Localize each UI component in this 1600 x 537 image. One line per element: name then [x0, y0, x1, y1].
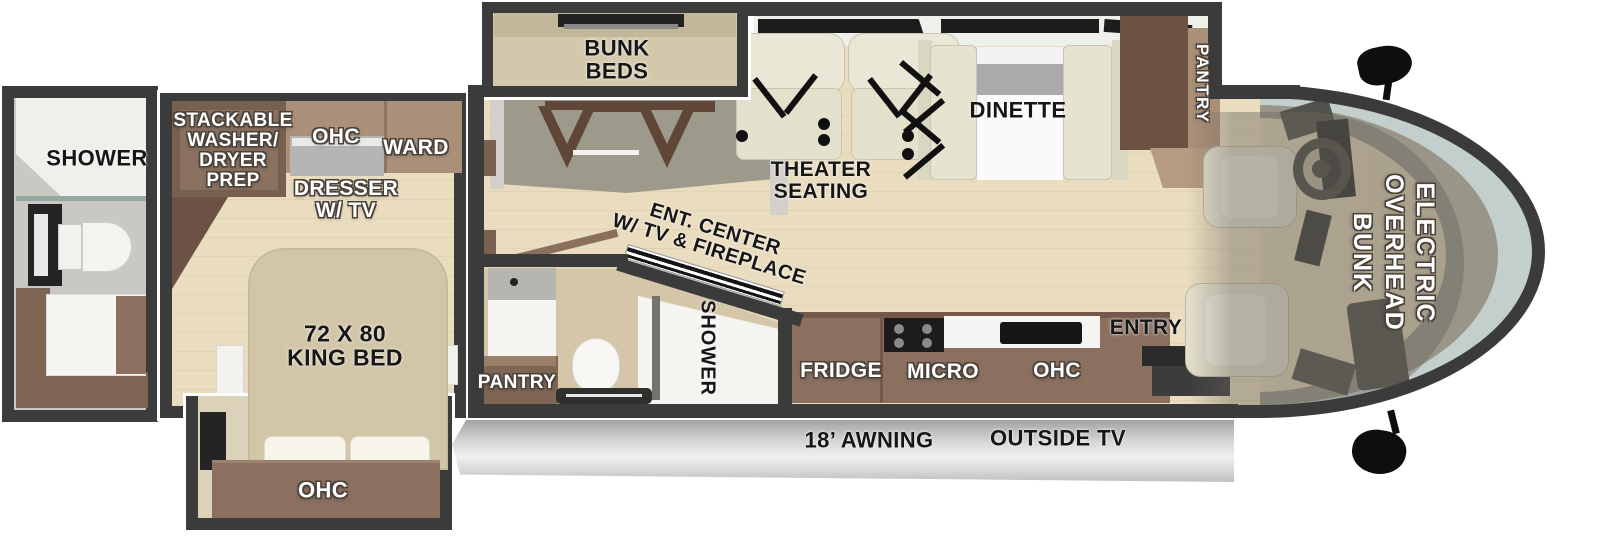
toilet: [572, 338, 620, 394]
slide-wall-top: [744, 2, 1222, 16]
cupholder-dot: [818, 134, 830, 146]
label-overhead-bunk: ELECTRIC OVERHEAD BUNK: [1346, 174, 1440, 332]
label-dinette: DINETTE: [970, 98, 1067, 121]
side-mirror-icon: [1349, 426, 1410, 479]
label-washer-dryer: STACKABLE WASHER/ DRYER PREP: [173, 111, 292, 192]
label-mid-shower: SHOWER: [696, 300, 717, 396]
faucet-dot: [510, 278, 518, 286]
shower-door: [652, 296, 660, 400]
cupholder-dot: [818, 118, 830, 130]
label-king-bed: 72 X 80 KING BED: [287, 322, 403, 371]
cooktop: [884, 318, 944, 352]
burner-dot: [922, 324, 932, 334]
label-theater: THEATER SEATING: [771, 159, 871, 204]
burner-dot: [922, 338, 932, 348]
toilet: [58, 224, 82, 270]
bath-wall: [478, 254, 628, 267]
theater-seat: [733, 33, 845, 93]
bath-wall: [778, 308, 792, 408]
label-ward: WARD: [383, 137, 449, 159]
kitchen-tv: [1000, 322, 1082, 344]
label-bunk-beds: BUNK BEDS: [584, 37, 649, 84]
rv-floorplan: SHOWER STACKABLE WASHER/ DRYER PREP OHC …: [0, 0, 1600, 537]
cupholder-dot: [736, 130, 748, 142]
pantry-cabinet: [1120, 15, 1188, 150]
bathroom-sink: [488, 268, 556, 302]
burner-dot: [894, 338, 904, 348]
pantry-cabinet: [482, 356, 556, 366]
shower-threshold: [566, 394, 642, 397]
window-frame: [941, 19, 1099, 33]
window-pane: [34, 214, 48, 276]
window-frame: [564, 24, 678, 29]
label-bedroom-ohc: OHC: [312, 126, 360, 148]
label-slide-ohc: OHC: [298, 478, 348, 501]
wall: [468, 404, 1238, 418]
cupholder-dot: [902, 148, 914, 160]
label-fridge: FRIDGE: [800, 360, 882, 382]
vanity-cabinet: [16, 372, 148, 408]
label-outside-tv: OUTSIDE TV: [990, 426, 1126, 449]
shower-glass: [16, 196, 146, 201]
label-pantry-top: PANTRY: [1193, 44, 1211, 124]
wall: [468, 85, 484, 418]
wall-cabinet: [484, 140, 496, 176]
label-entry: ENTRY: [1110, 317, 1182, 339]
burner-dot: [894, 324, 904, 334]
dinette-bench: [1063, 45, 1112, 180]
window-frame: [758, 19, 918, 33]
dinette-table: [977, 64, 1063, 95]
sink-counter: [488, 300, 556, 356]
side-mirror-icon: [1383, 80, 1393, 101]
label-dresser: DRESSER W/ TV: [294, 178, 398, 223]
label-awning: 18’ AWNING: [804, 428, 933, 451]
toilet: [82, 222, 132, 272]
den-table-edge: [573, 150, 639, 155]
label-kitchen-ohc: OHC: [1033, 360, 1081, 382]
dinette-table: [977, 47, 1063, 64]
label-rear-shower: SHOWER: [46, 146, 147, 169]
label-mid-pantry: PANTRY: [478, 373, 556, 393]
label-micro: MICRO: [907, 361, 979, 383]
vanity-cabinet: [116, 296, 146, 374]
